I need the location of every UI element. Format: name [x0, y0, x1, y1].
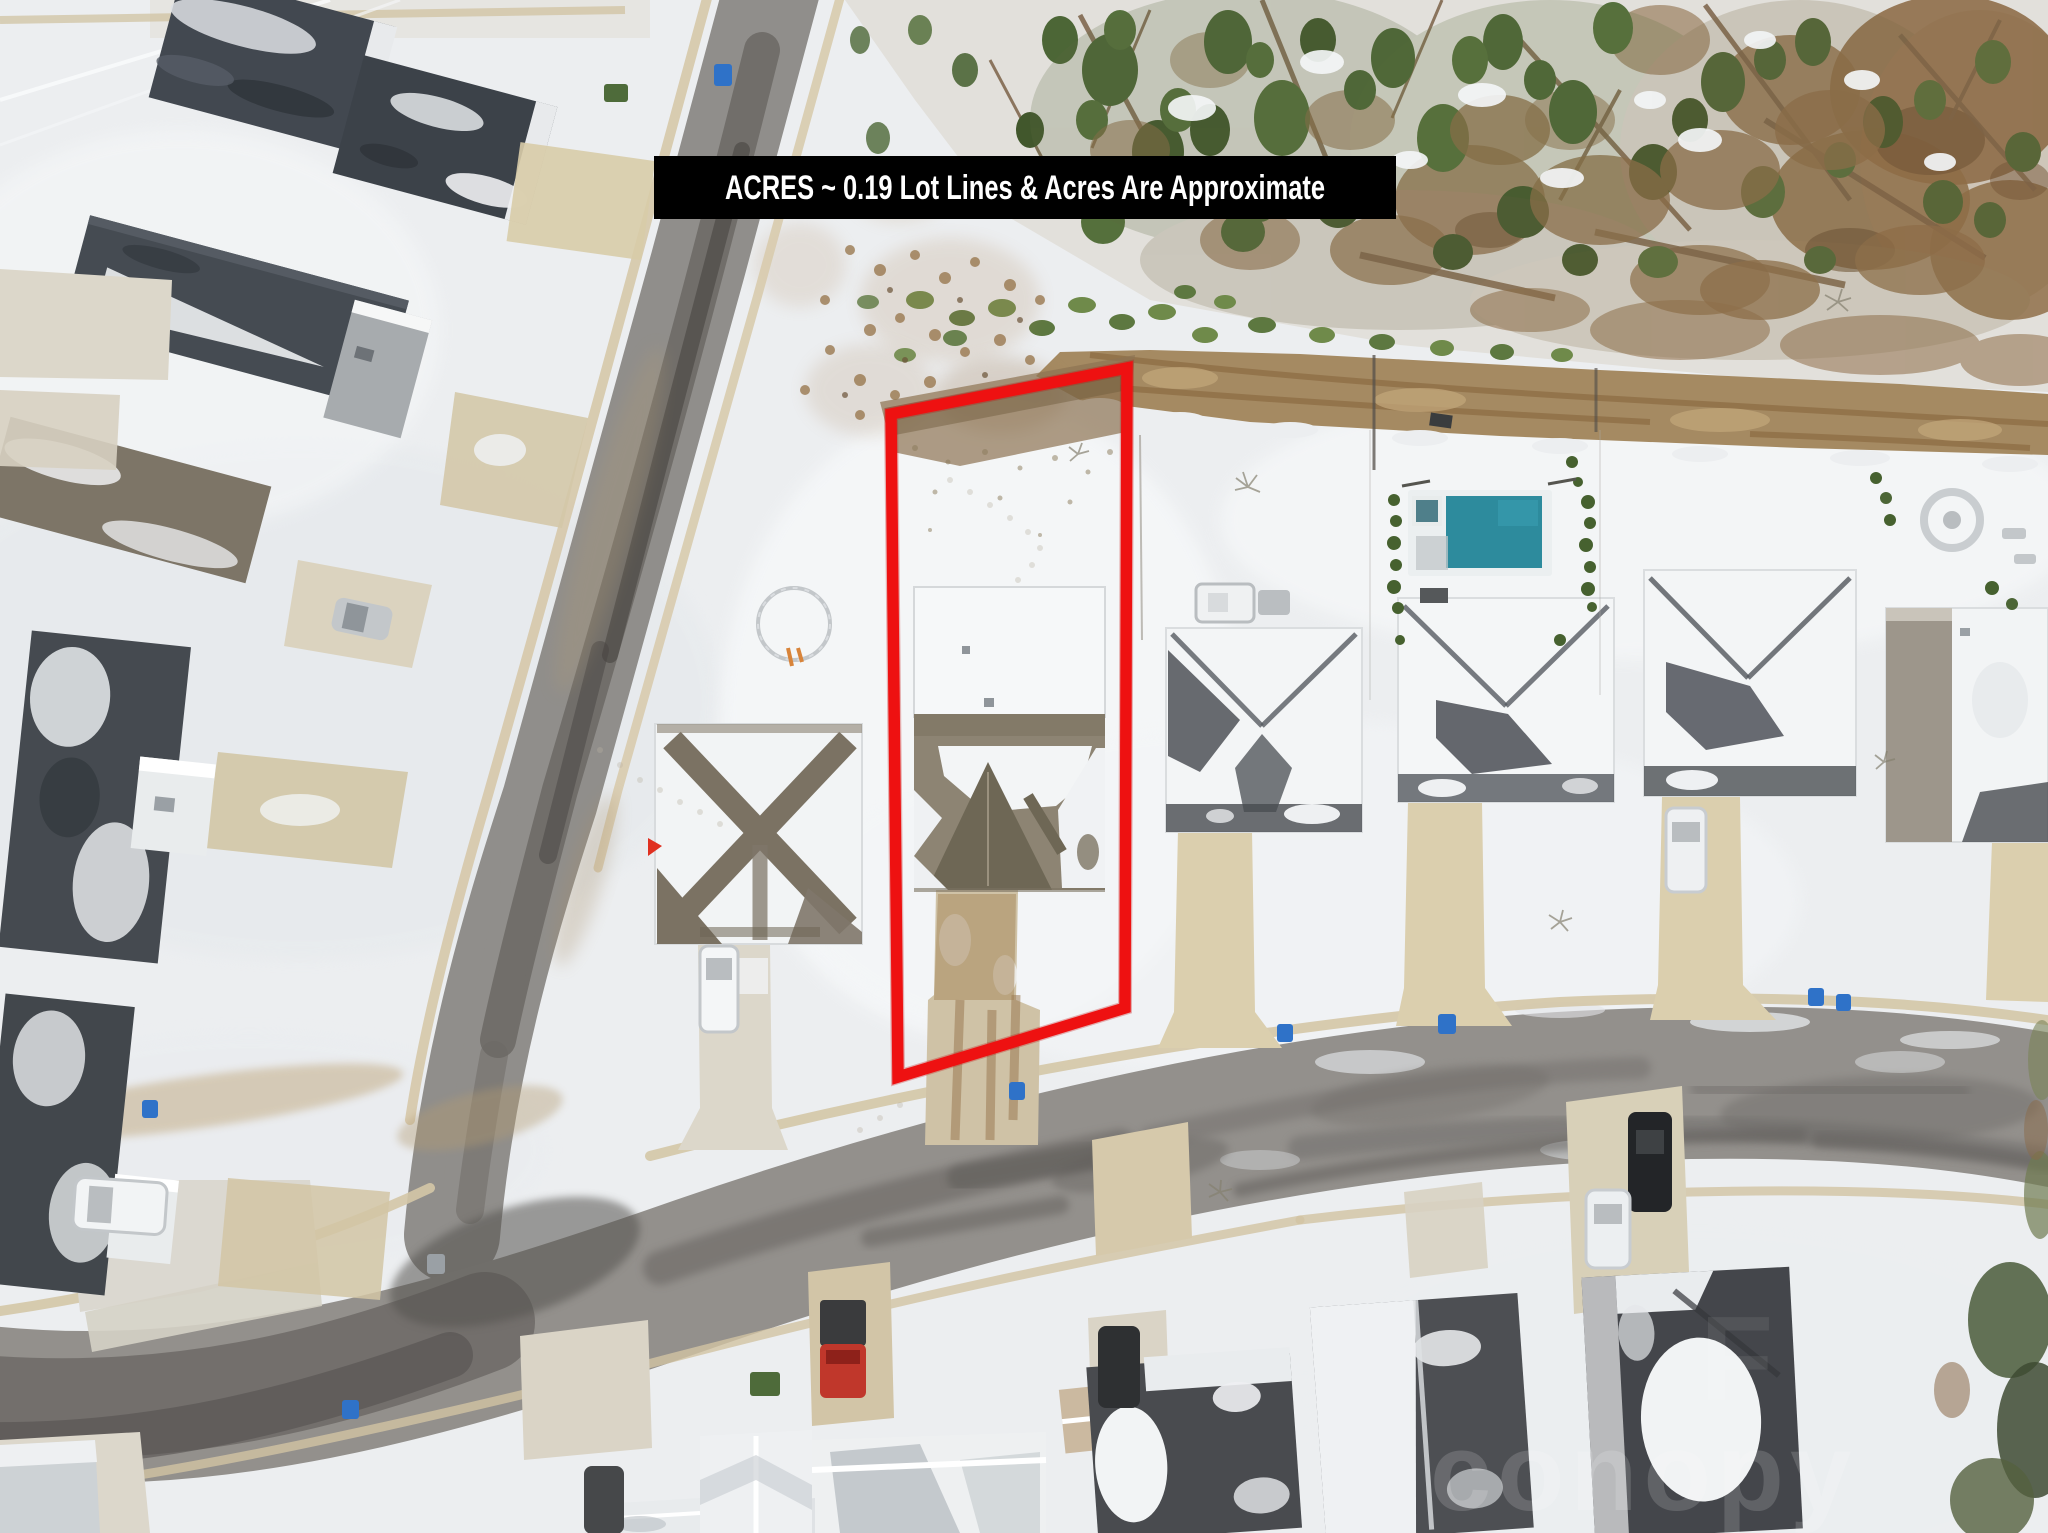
svg-text:F: F — [1700, 1292, 1773, 1426]
svg-text:conopy: conopy — [1430, 1411, 1857, 1533]
svg-text:ACRES ~ 0.19 Lot Lines & Acres: ACRES ~ 0.19 Lot Lines & Acres Are Appro… — [725, 169, 1325, 207]
